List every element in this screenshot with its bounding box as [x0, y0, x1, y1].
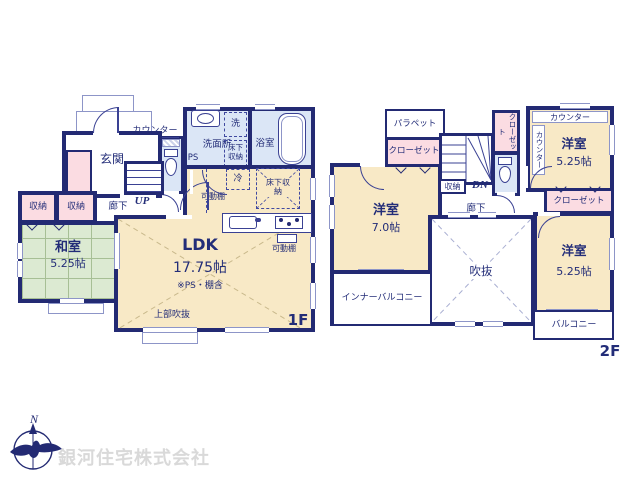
underfloor-storage-kitchen-label: 床下収納 [263, 178, 293, 197]
bedroom-se-size-label: 5.25帖 [546, 266, 602, 279]
toilet-door-arc [161, 194, 179, 212]
bedroom-ne-size-label: 5.25帖 [546, 156, 602, 169]
stairs-2f-steps [442, 136, 491, 182]
closet-nw-label: クローゼット [387, 146, 441, 156]
window [143, 327, 197, 333]
movable-shelf-kitchen-label: 可動棚 [268, 244, 300, 253]
void-label: 吹抜 [455, 265, 507, 279]
counter-top-label: カウンター [537, 113, 603, 122]
toilet-tank-1f [164, 149, 178, 157]
counter-side-label: カウンター [533, 128, 544, 172]
window [60, 298, 84, 304]
window [196, 104, 220, 110]
washitsu-veranda-step [48, 303, 104, 314]
open-ceiling-label: 上部吹抜 [140, 310, 204, 321]
closet-e-label: クローゼット [546, 196, 612, 206]
window [310, 237, 316, 263]
window [17, 261, 23, 277]
window [560, 103, 590, 109]
washitsu-size-label: 5.25帖 [38, 258, 98, 271]
washbasin-bowl [197, 113, 214, 124]
stairs-1f [124, 161, 164, 195]
floor-1-label: 1F [282, 312, 314, 330]
bathroom-label: 浴室 [250, 138, 280, 149]
ldk-size-label: 17.75帖 [145, 260, 255, 277]
floor-2-label: 2F [594, 343, 626, 361]
parapet-label: パラペット [387, 119, 443, 129]
bedroom-west-size-label: 7.0帖 [356, 222, 416, 235]
bathtub-inner-line [281, 116, 303, 162]
sliding-door-washitsu [114, 233, 120, 269]
stove-burner [287, 222, 291, 226]
washer-label: 洗 [224, 119, 247, 130]
toilet-2f-door-arc [497, 195, 515, 213]
ldk-terrace-step [142, 332, 198, 344]
toilet-tank-2f [498, 157, 512, 165]
genkan-shoe-closet [66, 150, 92, 194]
compass-north-label: N [29, 412, 39, 426]
room-bedroom-west [330, 163, 442, 274]
window [609, 125, 615, 155]
ps-label: PS [184, 153, 202, 163]
bedroom-ne-door-gap [523, 166, 528, 188]
ldk-door-gap [166, 215, 192, 219]
storage-2-label: 収納 [58, 202, 94, 213]
window [483, 321, 503, 327]
bedroom-ne-label: 洋室 [548, 137, 600, 152]
window [310, 283, 316, 309]
compass-north-logo: N [8, 410, 64, 476]
window [225, 327, 269, 333]
window [478, 212, 496, 218]
ldk-label: LDK [150, 236, 250, 255]
stove-burner [279, 218, 283, 222]
bird-silhouette [10, 441, 62, 458]
kitchen-faucet [255, 218, 261, 222]
entrance-door-leaf [117, 107, 119, 133]
toilet-counter [162, 139, 180, 147]
stove-burner [295, 218, 299, 222]
window [310, 178, 316, 200]
window [329, 175, 335, 197]
bedroom-west-label: 洋室 [356, 203, 416, 218]
ldk-note-label: ※PS・棚含 [150, 281, 250, 292]
window [329, 205, 335, 229]
hallway-label-1f: 廊下 [100, 201, 136, 212]
washitsu-label: 和室 [38, 240, 98, 255]
movable-shelf-kitchen-box [277, 234, 297, 243]
bedroom-se-label: 洋室 [548, 244, 600, 259]
window [455, 321, 475, 327]
storage-1-label: 収納 [20, 202, 56, 213]
pantry-door-gap [190, 170, 193, 194]
fridge-label: 冷 [226, 174, 250, 185]
company-name: 銀河住宅株式会社 [58, 448, 278, 469]
closet-n-label: クローゼット [495, 113, 517, 151]
storage-2f-label: 収納 [440, 182, 465, 191]
floorplan-page: { "f1": { "floor": "1F", "genkan": "玄関",… [0, 0, 640, 480]
washroom-label: 洗面所 [186, 139, 248, 150]
window [17, 243, 23, 259]
kitchen-sink [229, 216, 257, 229]
stairs-dn-label: DN [466, 179, 494, 192]
inner-balcony-label: インナーバルコニー [334, 293, 430, 304]
window [448, 212, 470, 218]
window [609, 238, 615, 270]
window [255, 104, 275, 110]
balcony-label: バルコニー [548, 320, 600, 331]
